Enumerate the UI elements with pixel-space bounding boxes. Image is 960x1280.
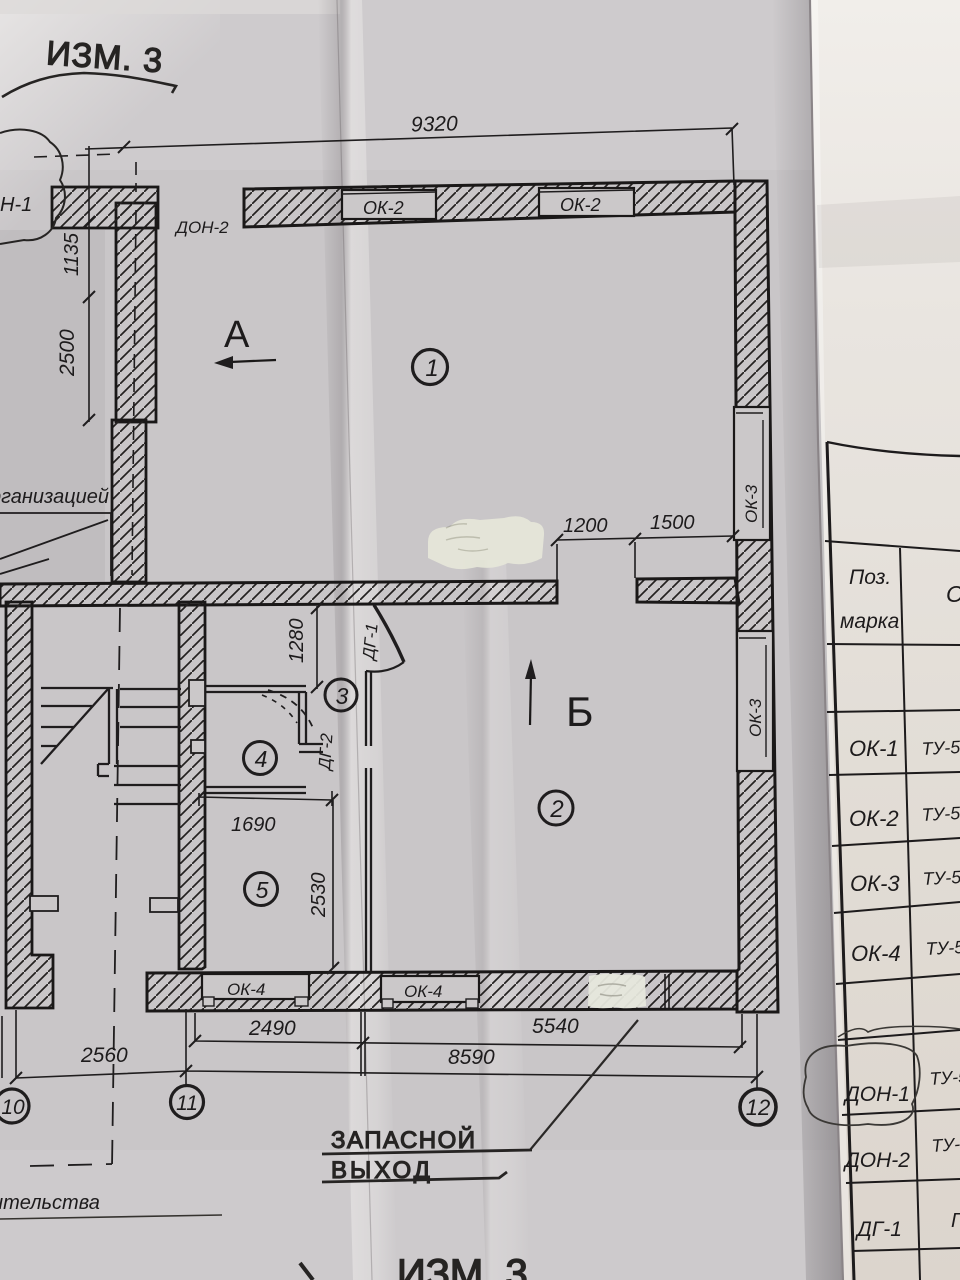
- svg-text:Н-1: Н-1: [0, 194, 32, 216]
- svg-text:ДГ-1: ДГ-1: [359, 622, 382, 662]
- svg-text:ТУ-5: ТУ-5: [931, 1133, 960, 1156]
- svg-text:2: 2: [549, 796, 563, 823]
- svg-text:О: О: [946, 581, 960, 607]
- svg-text:11: 11: [176, 1092, 198, 1115]
- svg-text:2500: 2500: [56, 329, 79, 377]
- svg-text:ОК-4: ОК-4: [851, 941, 901, 966]
- svg-text:ОК-3: ОК-3: [850, 871, 900, 896]
- svg-text:1690: 1690: [231, 814, 276, 836]
- svg-text:ДОН-2: ДОН-2: [174, 218, 229, 237]
- svg-text:ТУ-5: ТУ-5: [929, 1066, 960, 1089]
- svg-text:3: 3: [336, 683, 349, 709]
- svg-text:марка: марка: [840, 610, 899, 633]
- svg-text:10: 10: [1, 1096, 25, 1119]
- svg-text:ОК-4: ОК-4: [227, 980, 265, 999]
- svg-text:2560: 2560: [80, 1044, 128, 1067]
- svg-text:2530: 2530: [308, 873, 330, 919]
- svg-text:ТУ-57: ТУ-57: [922, 866, 960, 889]
- svg-text:12: 12: [746, 1095, 770, 1120]
- svg-text:ОК-2: ОК-2: [363, 198, 404, 218]
- svg-text:1500: 1500: [650, 512, 695, 534]
- svg-text:рганизацией: рганизацией: [0, 486, 109, 508]
- svg-text:ТУ-57: ТУ-57: [921, 802, 960, 825]
- svg-text:ТУ-5: ТУ-5: [925, 937, 960, 959]
- svg-text:ОК-2: ОК-2: [560, 195, 601, 215]
- svg-text:8590: 8590: [448, 1046, 495, 1069]
- svg-text:А: А: [224, 314, 250, 356]
- svg-text:ДОН-1: ДОН-1: [843, 1083, 910, 1106]
- svg-text:ЗАПАСНОЙ: ЗАПАСНОЙ: [331, 1126, 477, 1154]
- svg-text:5: 5: [256, 877, 269, 903]
- svg-text:ДОН-2: ДОН-2: [843, 1149, 910, 1172]
- svg-text:5540: 5540: [532, 1015, 579, 1038]
- svg-text:ОК-4: ОК-4: [404, 982, 442, 1001]
- svg-text:ДГ-1: ДГ-1: [855, 1218, 902, 1241]
- svg-text:ОК-2: ОК-2: [849, 806, 899, 831]
- svg-text:ДГ-2: ДГ-2: [315, 732, 337, 772]
- svg-text:1200: 1200: [563, 515, 608, 537]
- svg-text:ительства: ительства: [0, 1192, 100, 1214]
- svg-text:ОК-3: ОК-3: [746, 698, 765, 737]
- svg-text:Поз.: Поз.: [849, 566, 891, 589]
- svg-text:1280: 1280: [286, 619, 308, 664]
- svg-text:Г: Г: [951, 1210, 960, 1232]
- svg-text:Б: Б: [566, 688, 594, 735]
- svg-text:ИЗМ. 3: ИЗМ. 3: [397, 1252, 528, 1280]
- svg-text:1: 1: [425, 355, 438, 382]
- svg-text:1135: 1135: [61, 232, 83, 276]
- svg-text:ТУ-57: ТУ-57: [921, 736, 960, 759]
- svg-text:4: 4: [255, 746, 268, 772]
- svg-text:ОК-1: ОК-1: [849, 736, 899, 761]
- svg-text:ОК-3: ОК-3: [742, 484, 761, 523]
- svg-text:9320: 9320: [411, 112, 459, 136]
- svg-text:2490: 2490: [248, 1017, 296, 1040]
